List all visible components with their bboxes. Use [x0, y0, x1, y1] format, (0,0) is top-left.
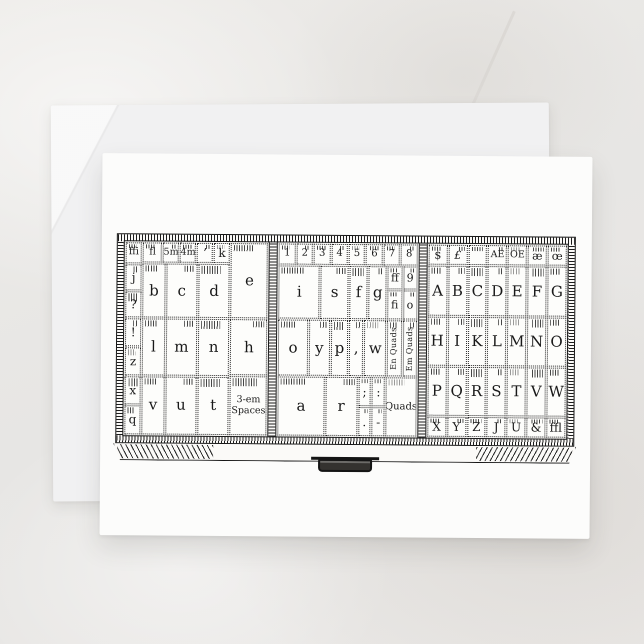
- type-cell: e: [231, 243, 269, 318]
- type-cell: f: [349, 266, 367, 320]
- left-e-column: e h 3-em Spaces: [230, 243, 269, 435]
- type-cell: j: [125, 264, 142, 290]
- type-cell: G: [547, 267, 566, 317]
- type-cell: u: [165, 376, 197, 435]
- type-cell: -: [372, 407, 385, 436]
- type-cell: o: [278, 319, 308, 376]
- type-cell: £: [448, 245, 467, 265]
- type-cell: ffl: [546, 417, 565, 437]
- type-cell: k: [214, 243, 230, 264]
- left-main-columns: fl 5m 4m ’ k b c d: [142, 242, 231, 435]
- type-cell: :: [372, 377, 385, 406]
- type-cell: v: [142, 376, 165, 435]
- type-cell: Q: [447, 367, 466, 416]
- type-cell: T: [507, 367, 526, 416]
- type-cell: F: [527, 267, 546, 317]
- type-cell: X: [427, 416, 446, 436]
- type-cell: N: [527, 317, 546, 367]
- type-cell-3em-spaces: 3-em Spaces: [230, 376, 268, 435]
- type-cell: E: [508, 267, 527, 317]
- type-cell: g: [368, 266, 386, 320]
- type-cell: I: [447, 317, 466, 367]
- type-cell: OE: [508, 245, 527, 265]
- type-cell: Y: [447, 416, 466, 436]
- type-case-engraving: ffi j ? ! z x q fl 5m 4m: [115, 233, 576, 464]
- type-cell-em-quads: Em Quads: [402, 321, 417, 377]
- type-cell: fl: [143, 242, 162, 263]
- type-cell: H: [428, 316, 447, 366]
- type-cell: V: [527, 368, 546, 417]
- type-cell: 8: [401, 244, 418, 265]
- type-cell: 3: [314, 244, 331, 265]
- type-cell: AE: [488, 245, 507, 265]
- type-cell: 5m: [163, 243, 179, 264]
- frame-hatch-right: [566, 245, 575, 439]
- type-cell: S: [487, 367, 506, 416]
- type-cell: b: [143, 264, 166, 318]
- type-cell: i: [279, 265, 320, 319]
- type-cell: 9: [403, 266, 417, 289]
- type-cell: P: [427, 367, 446, 416]
- spaces-label-line2: Spaces: [231, 406, 265, 417]
- type-cell: K: [467, 317, 486, 367]
- type-cell: W: [547, 368, 566, 417]
- type-cell: O: [547, 317, 566, 367]
- marble-background: { "colors": { "background_marble": "#e9e…: [0, 0, 644, 644]
- type-cell: ;: [358, 377, 371, 406]
- type-cell: 2: [296, 244, 313, 265]
- type-cell: 7: [384, 244, 401, 265]
- type-cell: .: [358, 407, 371, 436]
- case-section-capitals: $ £ AE OE æ œ A B C D: [426, 244, 568, 439]
- type-cell: R: [467, 367, 486, 416]
- case-handle: [318, 459, 372, 472]
- type-cell: r: [325, 377, 357, 436]
- type-cell: s: [320, 265, 348, 319]
- type-cell: p: [331, 320, 349, 376]
- type-cell: n: [198, 319, 230, 376]
- type-cell: &: [526, 417, 545, 437]
- type-cell-quads: Quads: [386, 378, 417, 437]
- type-cell: 1: [279, 243, 296, 264]
- type-cell: D: [488, 266, 507, 316]
- type-cell: ,: [349, 320, 363, 376]
- case-frame: ffi j ? ! z x q fl 5m 4m: [115, 233, 576, 447]
- type-cell: w: [364, 320, 387, 376]
- type-cell: c: [166, 264, 198, 318]
- type-cell: ffi: [126, 242, 142, 263]
- side-column: ffi j ? ! z x q: [124, 242, 142, 434]
- en-quads-label: En Quads: [390, 327, 398, 370]
- type-cell: U: [507, 417, 526, 437]
- type-cell: Z: [467, 417, 486, 437]
- case-section-lowercase-left: ffi j ? ! z x q fl 5m 4m: [123, 241, 269, 436]
- type-cell: m: [165, 319, 197, 376]
- type-cell: A: [428, 266, 447, 316]
- type-cell: ?: [125, 291, 142, 318]
- case-section-lowercase-middle: 1 2 3 4 5 6 7 8 i: [277, 242, 419, 437]
- type-cell: z: [125, 347, 142, 375]
- type-cell: h: [230, 319, 268, 376]
- quad-columns: ff 9 fi o En Quads: [387, 266, 417, 377]
- type-cell-en-quads: En Quads: [387, 321, 402, 377]
- type-cell: x: [125, 376, 142, 404]
- digits-row: 1 2 3 4 5 6 7 8: [279, 243, 417, 265]
- type-cell: d: [198, 264, 230, 318]
- type-cell: t: [197, 376, 229, 435]
- type-cell: 5: [349, 244, 366, 265]
- type-cell: J: [487, 417, 506, 437]
- type-cell: ’: [197, 243, 213, 264]
- type-cell: l: [142, 318, 165, 375]
- type-cell: 6: [366, 244, 383, 265]
- type-cell: fi: [388, 290, 402, 320]
- type-cell: o: [403, 290, 417, 320]
- flat-card: ffi j ? ! z x q fl 5m 4m: [100, 153, 593, 539]
- type-cell: 4: [331, 244, 348, 265]
- em-quads-label: Em Quads: [405, 326, 413, 371]
- type-cell: a: [278, 377, 325, 436]
- type-cell: $: [428, 245, 447, 265]
- type-cell: [468, 245, 487, 265]
- type-cell: C: [468, 266, 487, 316]
- type-cell: œ: [548, 246, 567, 266]
- type-cell: L: [487, 317, 506, 367]
- type-cell: !: [125, 319, 142, 347]
- type-cell: y: [309, 320, 330, 376]
- type-cell: 4m: [180, 243, 196, 264]
- type-cell: ff: [388, 266, 402, 289]
- type-cell: q: [124, 405, 141, 435]
- type-cell: M: [507, 317, 526, 367]
- type-cell: B: [448, 266, 467, 316]
- type-cell: æ: [528, 245, 547, 265]
